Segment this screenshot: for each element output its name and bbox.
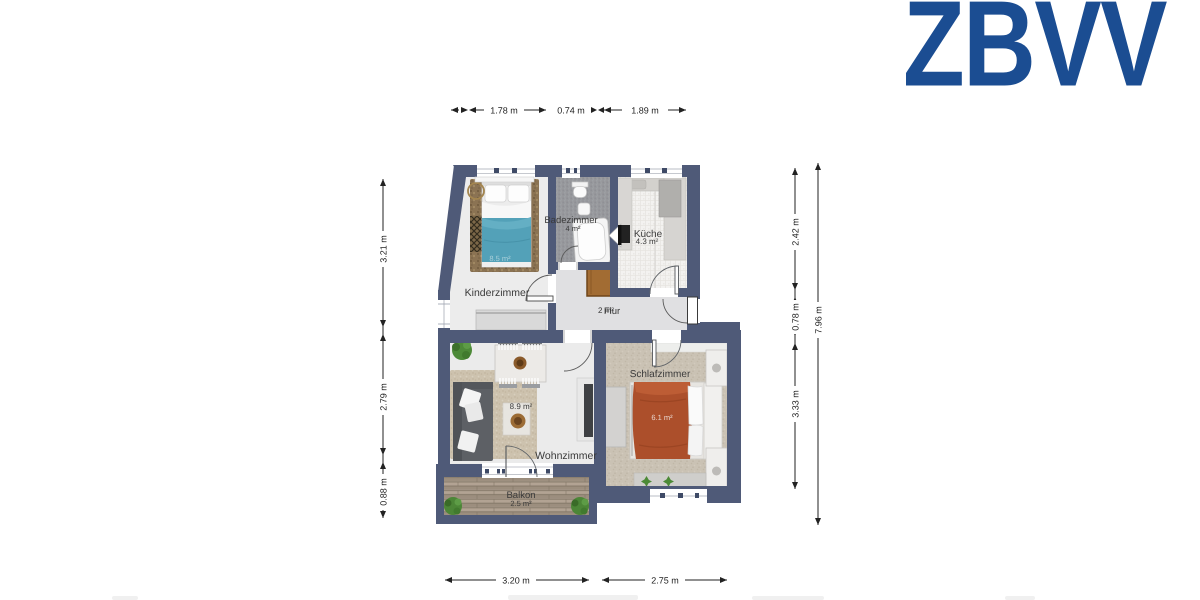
svg-text:1.89 m: 1.89 m (631, 106, 659, 116)
svg-text:ZBVV: ZBVV (903, 0, 1167, 112)
svg-text:3.21 m: 3.21 m (379, 235, 389, 263)
svg-text:7.96 m: 7.96 m (814, 306, 824, 334)
svg-text:Schlafzimmer: Schlafzimmer (630, 369, 691, 380)
svg-text:0.88 m: 0.88 m (379, 478, 389, 506)
svg-text:2 m²: 2 m² (598, 306, 614, 315)
svg-text:2.75 m: 2.75 m (651, 576, 679, 586)
svg-text:Kinderzimmer: Kinderzimmer (465, 287, 530, 299)
svg-text:2.42 m: 2.42 m (791, 218, 801, 246)
svg-text:2.5 m²: 2.5 m² (510, 499, 532, 508)
svg-text:1.78 m: 1.78 m (490, 106, 518, 116)
svg-text:3.33 m: 3.33 m (791, 390, 801, 418)
svg-text:0.78 m: 0.78 m (791, 303, 801, 331)
svg-text:4.3 m²: 4.3 m² (636, 237, 659, 246)
svg-text:8.9 m²: 8.9 m² (510, 402, 533, 411)
svg-text:0.74 m: 0.74 m (557, 106, 585, 116)
svg-text:2.79 m: 2.79 m (379, 383, 389, 411)
svg-text:4 m²: 4 m² (566, 224, 582, 233)
svg-text:8.5 m²: 8.5 m² (489, 254, 511, 263)
svg-text:Wohnzimmer: Wohnzimmer (535, 450, 597, 462)
svg-text:3.20 m: 3.20 m (502, 576, 530, 586)
svg-text:6.1 m²: 6.1 m² (651, 413, 673, 422)
